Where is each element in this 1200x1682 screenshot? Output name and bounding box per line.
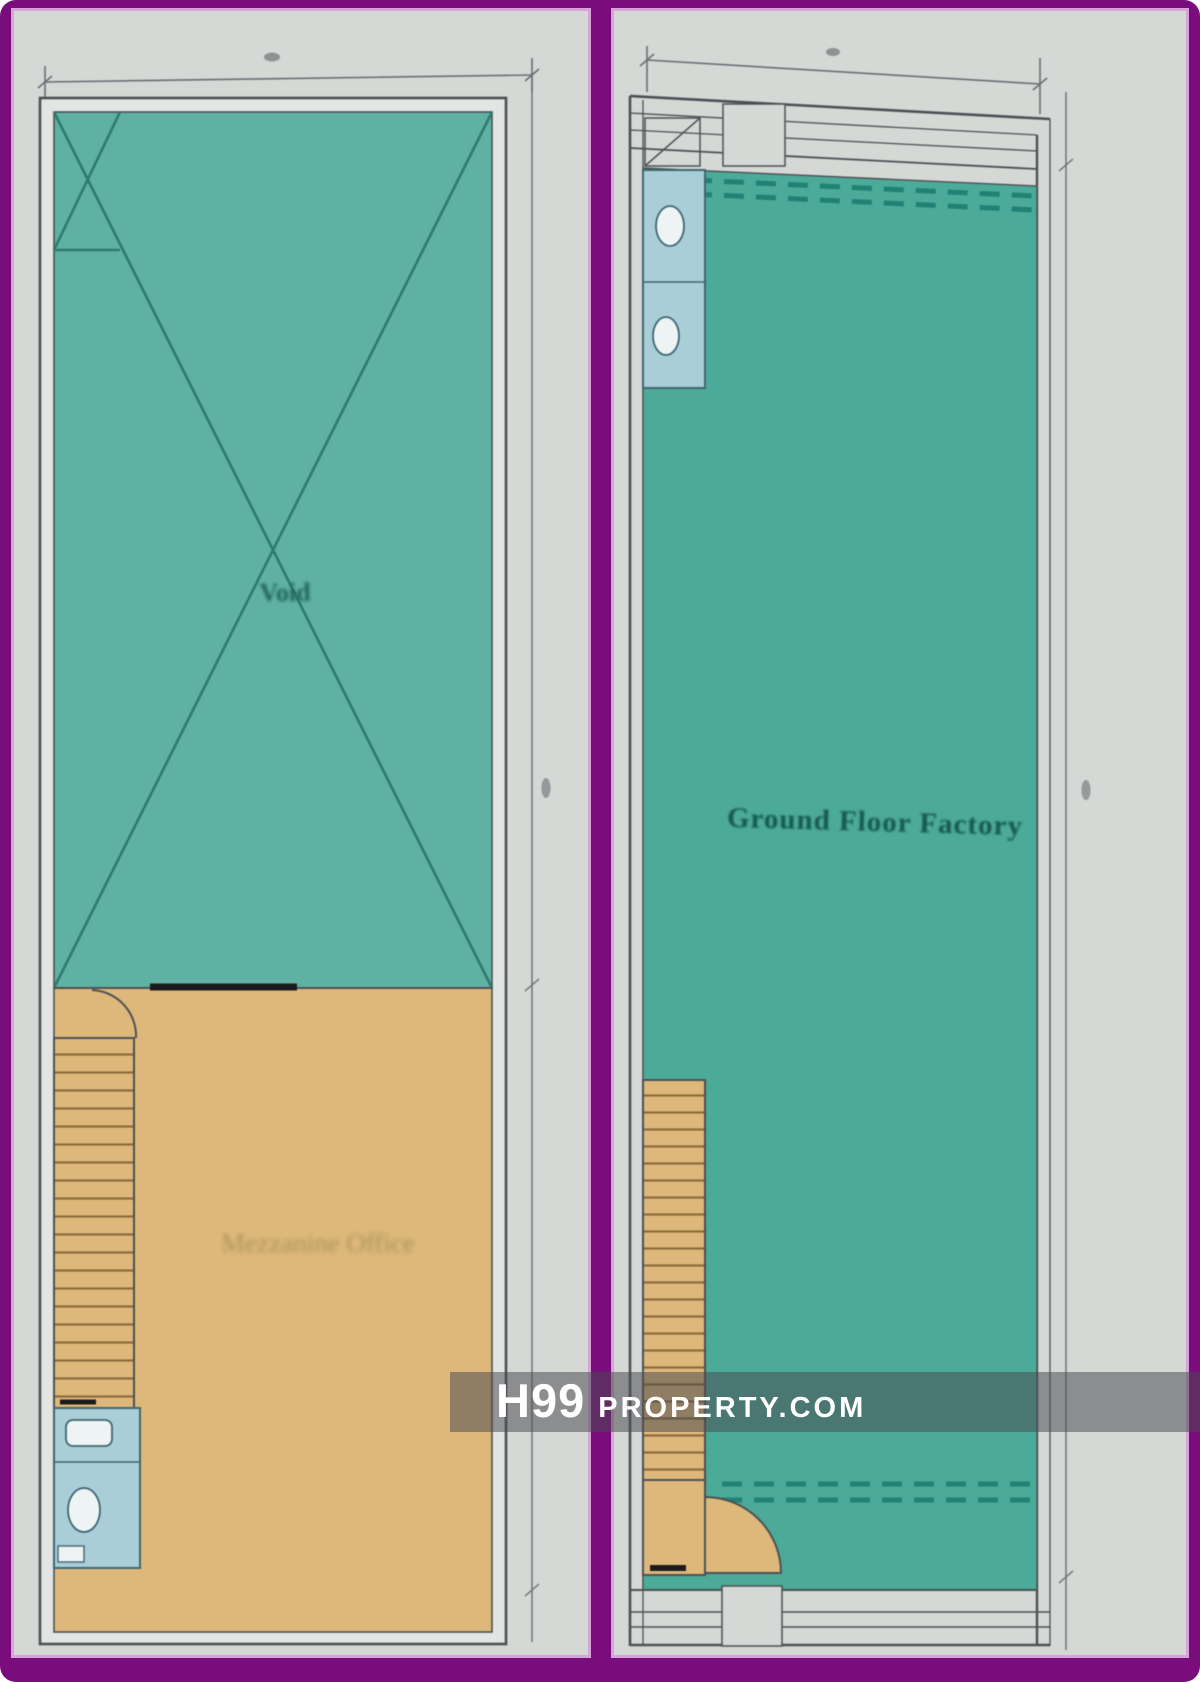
floor-plan-photo: Void Mezzanine Office Ground Floor Facto… bbox=[0, 0, 1200, 1682]
sink-fixture bbox=[66, 1420, 112, 1446]
top-left-stair-structure bbox=[645, 118, 700, 166]
toilet-block-right-plan bbox=[643, 170, 705, 388]
dimension-text-smudge bbox=[1082, 780, 1091, 800]
toilet-bowl-fixture bbox=[68, 1488, 100, 1532]
mezzanine-office-label: Mezzanine Office bbox=[168, 1228, 468, 1259]
dimension-text-smudge bbox=[826, 48, 840, 56]
watermark-bar: H99 PROPERTY.COM bbox=[450, 1372, 1200, 1432]
entrance-gap bbox=[723, 104, 785, 166]
watermark-logo: H99 bbox=[496, 1372, 585, 1430]
top-dimension-line bbox=[640, 46, 1047, 114]
watermark-site-text: PROPERTY.COM bbox=[598, 1392, 866, 1425]
staircase-left-plan bbox=[54, 1038, 134, 1408]
toilet-bowl-fixture bbox=[653, 317, 679, 355]
dimension-text-smudge bbox=[542, 778, 551, 798]
bottom-entrance-gap bbox=[722, 1586, 782, 1646]
stair-landing bbox=[643, 1480, 705, 1575]
bottom-wall-band bbox=[630, 1590, 1050, 1645]
top-dimension-line bbox=[38, 58, 539, 98]
cistern-fixture bbox=[58, 1546, 84, 1562]
dimension-text-smudge bbox=[264, 53, 280, 62]
void-label: Void bbox=[225, 577, 346, 609]
toilet-bowl-fixture bbox=[656, 206, 684, 246]
